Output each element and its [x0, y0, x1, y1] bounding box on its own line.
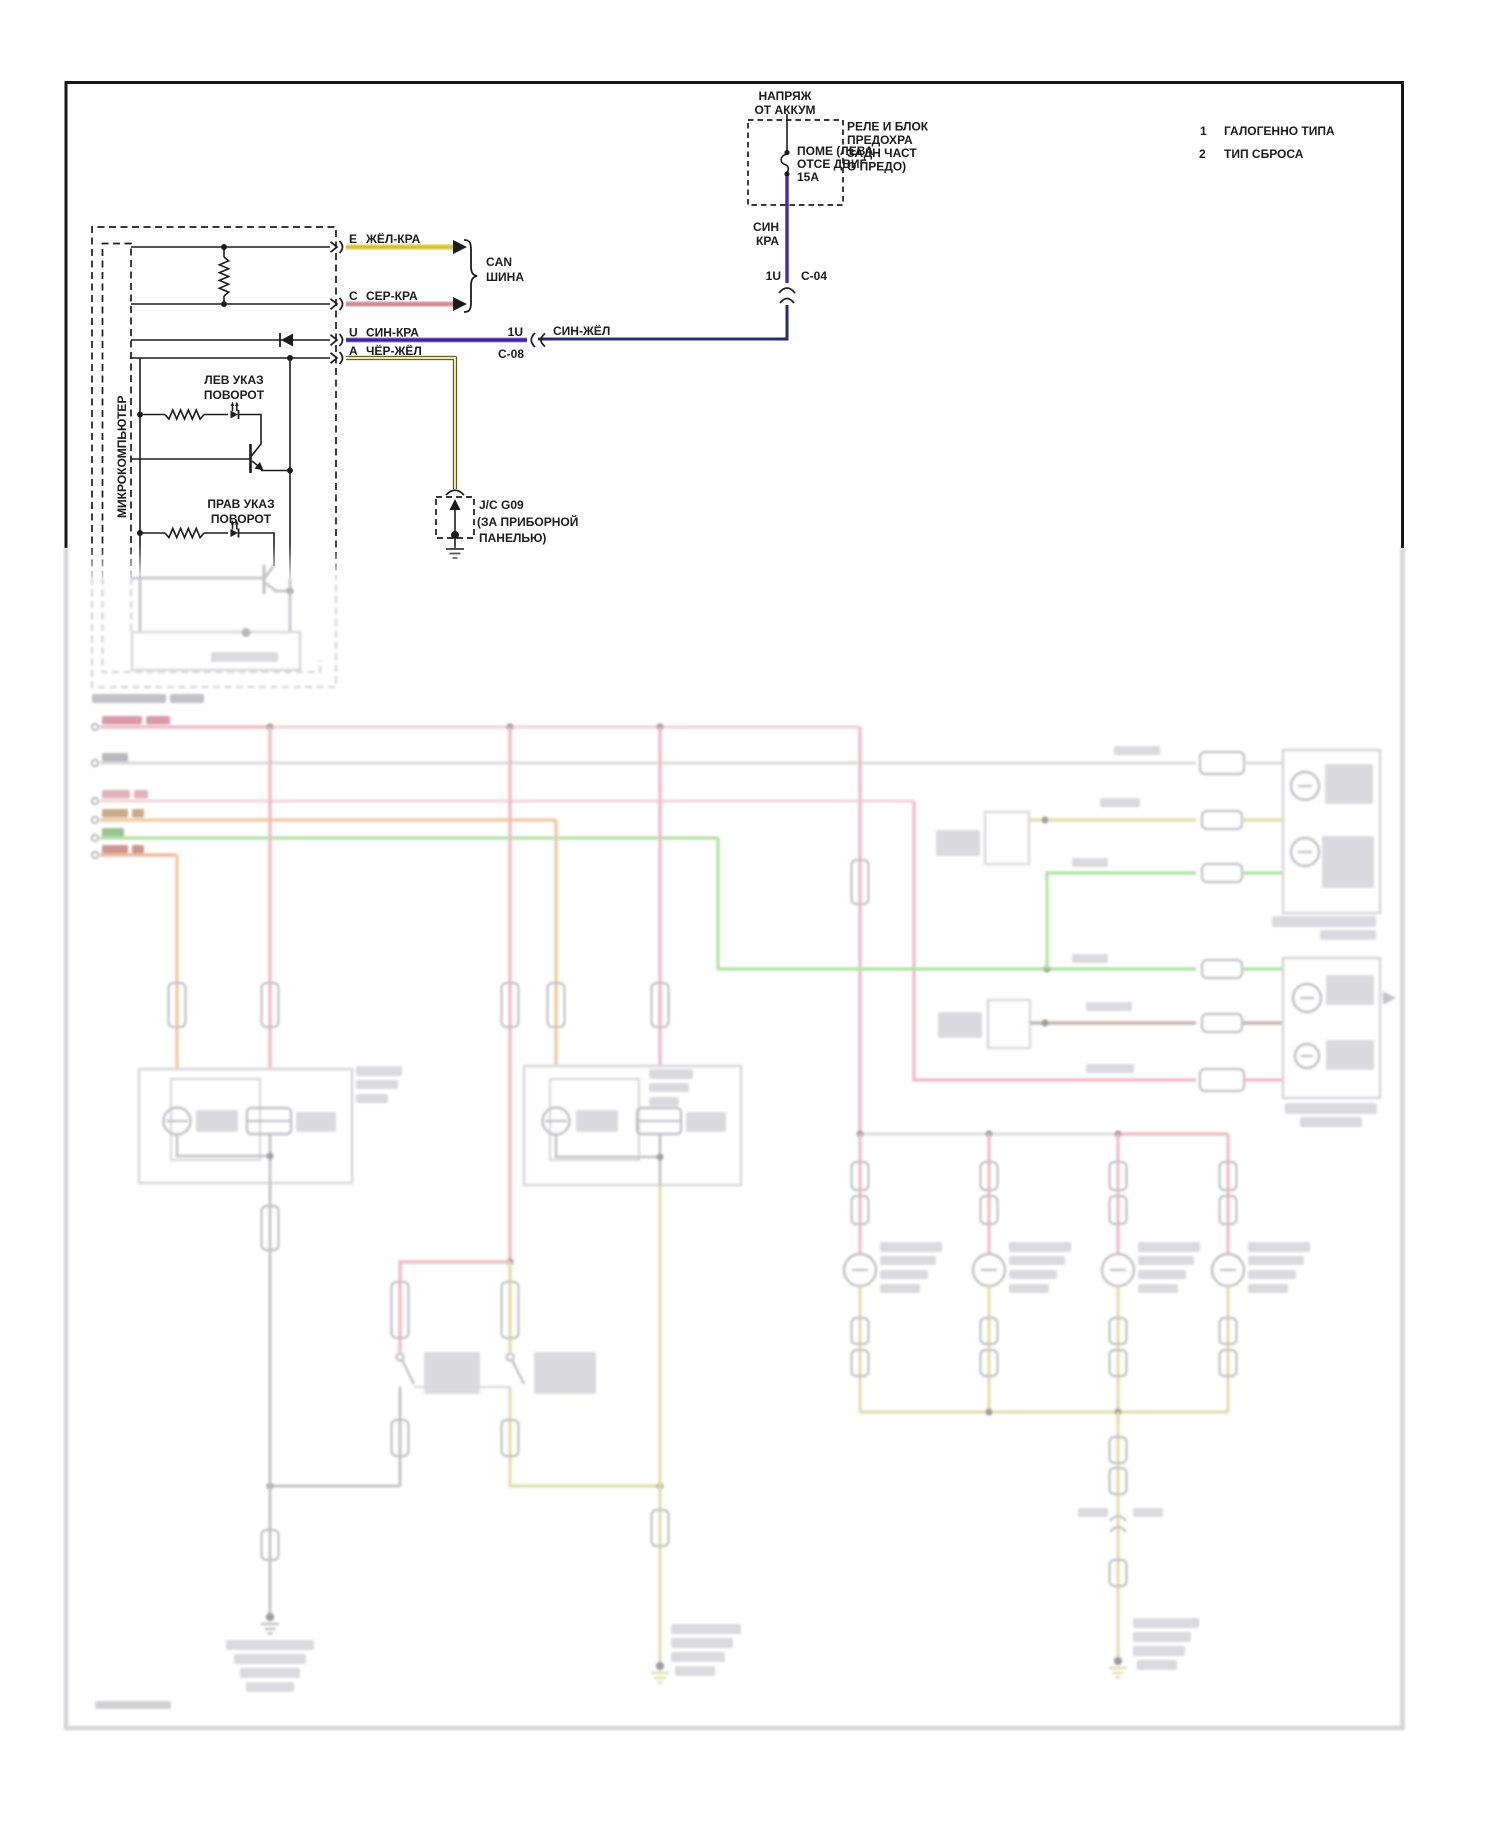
svg-text:ПОВОРОТ: ПОВОРОТ: [204, 388, 265, 402]
svg-text:1U: 1U: [766, 269, 781, 283]
svg-text:J/C G09: J/C G09: [479, 498, 524, 512]
svg-text:(ЗА ПРИБОРНОЙ: (ЗА ПРИБОРНОЙ: [477, 514, 578, 529]
svg-text:E: E: [349, 232, 357, 246]
svg-text:ШИНА: ШИНА: [486, 270, 524, 284]
svg-text:ТИП СБРОСА: ТИП СБРОСА: [1224, 147, 1304, 161]
svg-text:СИН-КРА: СИН-КРА: [366, 326, 419, 340]
svg-text:ПОВОРОТ: ПОВОРОТ: [211, 512, 272, 526]
svg-text:ПОМЕ (ЛЕВА: ПОМЕ (ЛЕВА: [797, 144, 874, 158]
svg-text:СЕР-КРА: СЕР-КРА: [366, 289, 418, 303]
svg-text:C-08: C-08: [498, 347, 524, 361]
svg-text:C: C: [349, 289, 358, 303]
svg-text:CAN: CAN: [486, 255, 512, 269]
svg-text:ПАНЕЛЬЮ): ПАНЕЛЬЮ): [479, 531, 546, 545]
svg-text:НАПРЯЖ: НАПРЯЖ: [759, 89, 812, 103]
svg-text:ЛЕВ УКАЗ: ЛЕВ УКАЗ: [204, 373, 263, 387]
svg-text:15А: 15А: [797, 170, 819, 184]
svg-text:РЕЛЕ И БЛОК: РЕЛЕ И БЛОК: [847, 120, 929, 134]
svg-text:ЧЁР-ЖЁЛ: ЧЁР-ЖЁЛ: [366, 343, 422, 358]
svg-text:ОТСЕ ДВИГ: ОТСЕ ДВИГ: [797, 157, 867, 171]
svg-text:C-04: C-04: [801, 269, 827, 283]
svg-text:ГАЛОГЕННО ТИПА: ГАЛОГЕННО ТИПА: [1224, 124, 1335, 138]
svg-text:СИН-ЖЁЛ: СИН-ЖЁЛ: [553, 323, 610, 338]
svg-text:ПРАВ УКАЗ: ПРАВ УКАЗ: [207, 497, 274, 511]
svg-text:ЖЁЛ-КРА: ЖЁЛ-КРА: [365, 231, 421, 246]
svg-text:ОТ АККУМ: ОТ АККУМ: [754, 103, 815, 117]
svg-text:1U: 1U: [508, 325, 523, 339]
svg-text:1: 1: [1200, 124, 1207, 138]
svg-text:2: 2: [1199, 147, 1206, 161]
svg-text:МИКРОКОМПЬЮТЕР: МИКРОКОМПЬЮТЕР: [115, 396, 129, 518]
svg-text:СИН: СИН: [753, 220, 779, 234]
svg-text:КРА: КРА: [756, 234, 779, 248]
